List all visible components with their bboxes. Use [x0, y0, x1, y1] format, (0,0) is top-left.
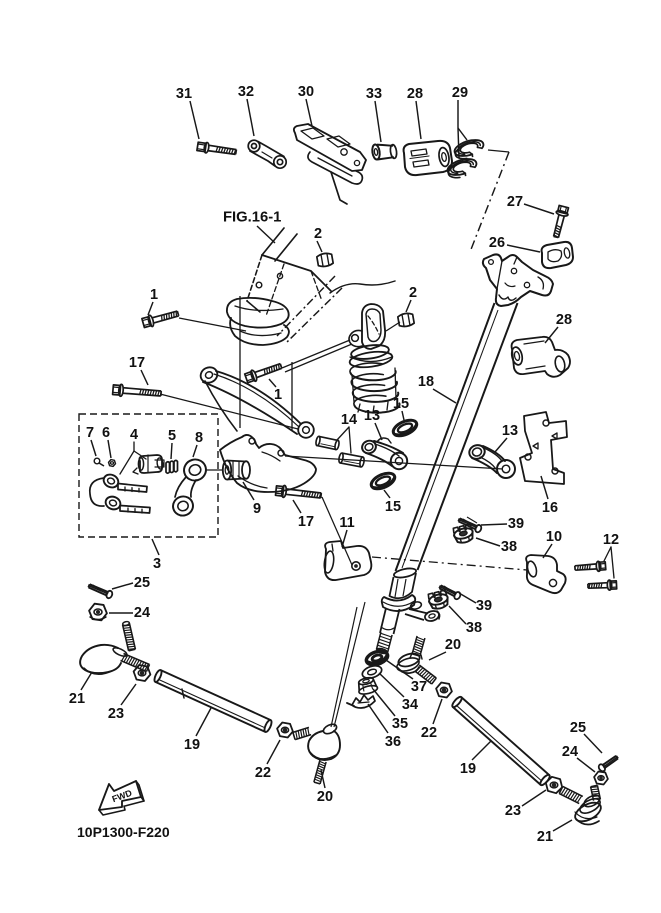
svg-text:11: 11 [339, 515, 354, 531]
svg-text:35: 35 [392, 716, 408, 732]
svg-text:37: 37 [411, 679, 427, 695]
svg-text:2: 2 [409, 285, 417, 301]
svg-text:17: 17 [298, 514, 314, 530]
svg-text:23: 23 [505, 803, 521, 819]
svg-text:19: 19 [460, 761, 476, 777]
svg-text:14: 14 [341, 412, 357, 428]
svg-text:26: 26 [489, 235, 505, 251]
svg-text:38: 38 [501, 539, 517, 555]
svg-text:8: 8 [195, 430, 203, 446]
svg-text:25: 25 [570, 720, 586, 736]
svg-text:1: 1 [150, 287, 158, 303]
svg-text:2: 2 [314, 226, 322, 242]
svg-text:13: 13 [364, 408, 380, 424]
svg-text:18: 18 [418, 374, 434, 390]
svg-text:25: 25 [134, 575, 150, 591]
svg-text:20: 20 [445, 637, 461, 653]
svg-text:17: 17 [129, 355, 145, 371]
svg-text:21: 21 [69, 691, 85, 707]
svg-text:15: 15 [393, 396, 409, 412]
svg-text:39: 39 [508, 516, 524, 532]
svg-text:21: 21 [537, 829, 553, 845]
svg-text:15: 15 [385, 499, 401, 515]
svg-text:32: 32 [238, 84, 254, 100]
svg-text:30: 30 [298, 84, 314, 100]
svg-text:7: 7 [86, 425, 94, 441]
svg-text:20: 20 [317, 789, 333, 805]
svg-text:22: 22 [421, 725, 437, 741]
svg-text:22: 22 [255, 765, 271, 781]
svg-text:34: 34 [402, 697, 418, 713]
svg-text:28: 28 [407, 86, 423, 102]
svg-text:6: 6 [102, 425, 110, 441]
svg-text:39: 39 [476, 598, 492, 614]
svg-text:16: 16 [542, 500, 558, 516]
svg-text:27: 27 [507, 194, 523, 210]
svg-text:5: 5 [168, 428, 176, 444]
svg-text:28: 28 [556, 312, 572, 328]
svg-text:23: 23 [108, 706, 124, 722]
svg-text:29: 29 [452, 85, 468, 101]
svg-text:24: 24 [134, 605, 150, 621]
svg-text:10: 10 [546, 529, 562, 545]
svg-text:19: 19 [184, 737, 200, 753]
svg-text:9: 9 [253, 501, 261, 517]
svg-text:FIG.16-1: FIG.16-1 [223, 210, 281, 226]
svg-text:38: 38 [466, 620, 482, 636]
svg-text:10P1300-F220: 10P1300-F220 [77, 824, 170, 840]
svg-text:4: 4 [130, 427, 138, 443]
svg-text:3: 3 [153, 556, 161, 572]
svg-text:13: 13 [502, 423, 518, 439]
svg-text:12: 12 [603, 532, 619, 548]
svg-text:24: 24 [562, 744, 578, 760]
svg-text:31: 31 [176, 86, 192, 102]
svg-text:33: 33 [366, 86, 382, 102]
svg-text:36: 36 [385, 734, 401, 750]
